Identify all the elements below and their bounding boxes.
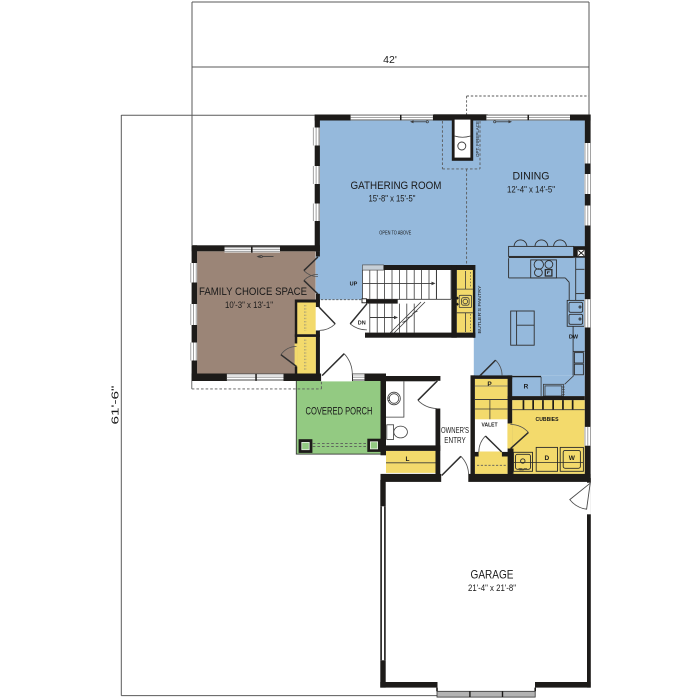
svg-text:W: W — [569, 455, 576, 462]
svg-text:CUBBIES: CUBBIES — [536, 417, 559, 423]
svg-text:VALET: VALET — [482, 423, 499, 429]
svg-text:sts: sts — [519, 468, 524, 472]
svg-text:DN: DN — [358, 321, 366, 327]
svg-text:21'-4" x 21'-8": 21'-4" x 21'-8" — [468, 583, 516, 594]
svg-text:BUTLER'S PANTRY: BUTLER'S PANTRY — [477, 286, 482, 334]
svg-text:UP: UP — [350, 281, 358, 287]
svg-text:DINING: DINING — [513, 171, 550, 183]
svg-text:P: P — [487, 381, 492, 388]
svg-text:OPT. FIREPLACE: OPT. FIREPLACE — [475, 121, 481, 157]
svg-text:COVERED PORCH: COVERED PORCH — [306, 406, 373, 418]
svg-text:61'-6": 61'-6" — [110, 385, 122, 424]
svg-text:12'-4" x 14'-5": 12'-4" x 14'-5" — [507, 185, 555, 196]
svg-text:15'-8" x 15'-5": 15'-8" x 15'-5" — [369, 194, 416, 205]
svg-text:OPEN TO ABOVE: OPEN TO ABOVE — [379, 231, 411, 237]
svg-text:42': 42' — [383, 54, 397, 66]
svg-text:ENTRY: ENTRY — [444, 436, 466, 445]
svg-text:FAMILY CHOICE SPACE: FAMILY CHOICE SPACE — [199, 286, 307, 298]
svg-text:D: D — [544, 455, 549, 462]
svg-text:10'-3" x 13'-1": 10'-3" x 13'-1" — [225, 300, 273, 311]
svg-text:L: L — [406, 456, 410, 463]
svg-text:OWNER'S: OWNER'S — [441, 426, 469, 435]
svg-text:DW: DW — [569, 335, 579, 341]
svg-text:GATHERING ROOM: GATHERING ROOM — [351, 180, 442, 192]
svg-text:GARAGE: GARAGE — [471, 567, 514, 581]
svg-text:R: R — [524, 384, 529, 391]
